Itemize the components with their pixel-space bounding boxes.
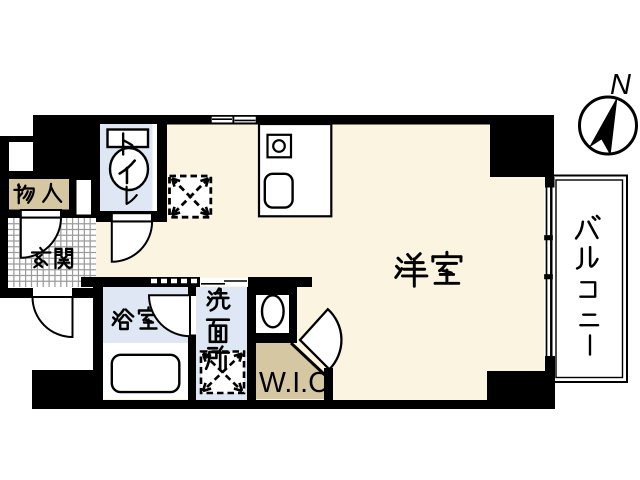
svg-text:W.I.C: W.I.C	[259, 367, 329, 399]
svg-text:N: N	[610, 69, 631, 101]
